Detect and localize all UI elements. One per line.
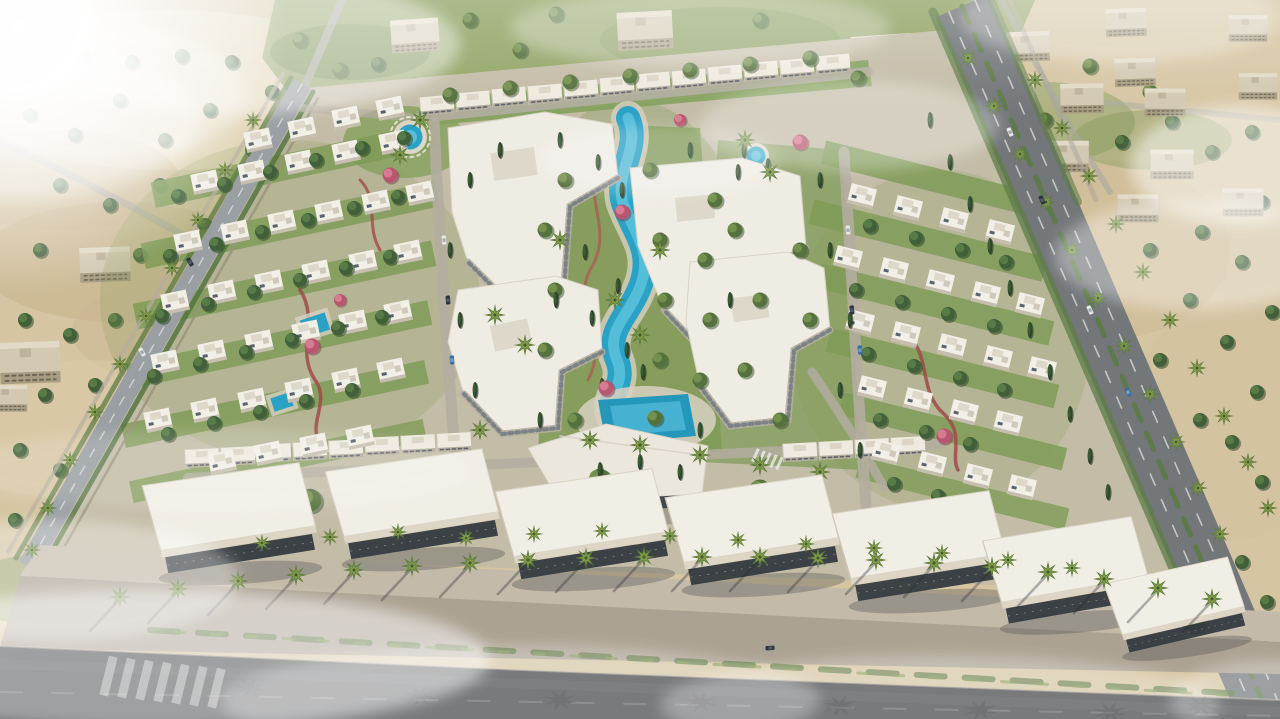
storefront-palm <box>729 531 748 550</box>
car <box>445 295 450 304</box>
boulevard-palm <box>1160 310 1180 330</box>
palm-tree <box>749 454 771 476</box>
boulevard-palm <box>1052 118 1072 138</box>
storefront-palm <box>321 528 340 547</box>
mist <box>540 125 780 195</box>
car <box>765 646 774 651</box>
boulevard-palm <box>1114 336 1134 356</box>
townhouse <box>819 440 854 460</box>
apartment-block <box>0 341 61 384</box>
palm-tree <box>549 229 571 251</box>
boulevard-palm <box>1140 384 1160 404</box>
townhouse <box>437 432 472 452</box>
storefront-palm <box>457 529 476 548</box>
palm-tree <box>579 429 601 451</box>
boulevard-palm <box>1258 498 1278 518</box>
street-palm <box>111 355 130 374</box>
storefront-palm <box>999 551 1018 570</box>
boulevard-palm <box>1214 406 1234 426</box>
boulevard-palm <box>1188 478 1208 498</box>
palm-tree <box>689 444 711 466</box>
palm-tree <box>469 419 491 441</box>
street-palm <box>86 403 105 422</box>
palm-tree <box>629 434 651 456</box>
palm-tree <box>409 109 431 131</box>
boulevard-palm <box>1238 452 1258 472</box>
car <box>857 345 862 354</box>
townhouse <box>783 442 818 462</box>
storefront-palm <box>661 527 680 546</box>
palm-tree <box>514 334 536 356</box>
storefront-palm <box>253 534 272 553</box>
street-palm <box>137 307 156 326</box>
storefront-palm <box>525 525 544 544</box>
car <box>849 305 854 314</box>
boulevard-palm <box>1079 166 1099 186</box>
boulevard-palm <box>1036 192 1056 212</box>
aerial-render-figure: Daytime aerial rendering of a walled res… <box>0 0 1280 719</box>
storefront-palm <box>593 522 612 541</box>
storefront-palm <box>389 523 408 542</box>
palm-tree <box>649 239 671 261</box>
boulevard-palm <box>1010 144 1030 164</box>
apartment-block <box>0 385 27 411</box>
street-palm <box>163 259 182 278</box>
storefront-palm <box>1063 559 1082 578</box>
palm-tree <box>484 304 506 326</box>
palm-tree <box>629 324 651 346</box>
palm-tree <box>604 289 626 311</box>
boulevard-palm <box>1210 524 1230 544</box>
car <box>845 225 850 234</box>
car <box>449 355 454 364</box>
car <box>441 235 446 244</box>
aerial-render <box>0 0 1280 719</box>
storefront-palm <box>797 535 816 554</box>
palm-tree <box>389 144 411 166</box>
boulevard-palm <box>1187 358 1207 378</box>
boulevard-palm <box>1166 432 1186 452</box>
